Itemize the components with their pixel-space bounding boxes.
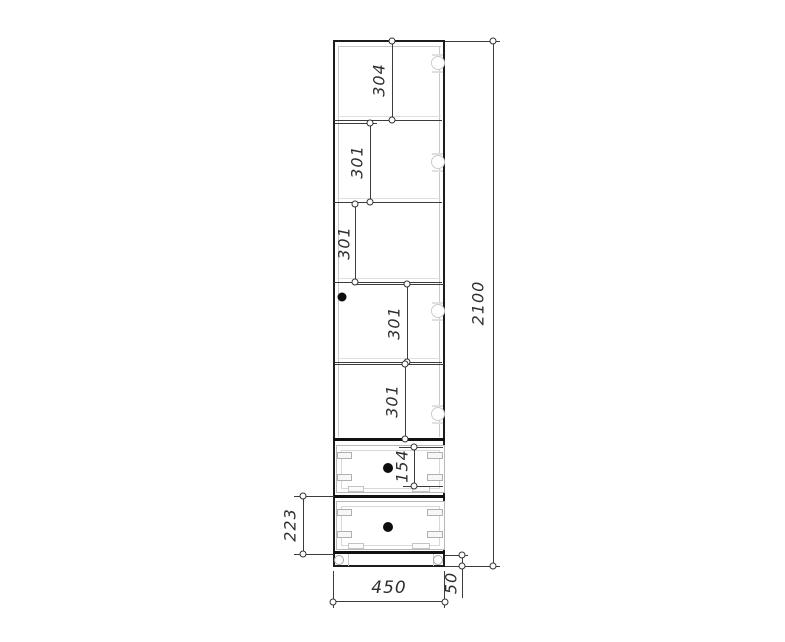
dim-line xyxy=(414,447,415,486)
hinge-4-tick-bottom xyxy=(432,422,443,424)
dim-line xyxy=(333,601,445,602)
drawer-2-slide-right xyxy=(412,543,430,549)
drawer-1-rail-right-upper xyxy=(427,452,443,459)
dim-terminator xyxy=(490,563,497,570)
shelf-3-edge-line xyxy=(334,282,442,283)
drawer-1-rail-left-upper xyxy=(337,452,352,459)
hinge-2-tick-bottom xyxy=(432,170,443,172)
hinge-icon-4 xyxy=(431,407,445,421)
dim-terminator xyxy=(442,599,449,606)
hinge-1-tick-bottom xyxy=(432,71,443,73)
dim-terminator xyxy=(352,201,359,208)
drawer-2-knob xyxy=(383,522,393,532)
cad-drawing-canvas: 304 301 301 301 301 154 xyxy=(0,0,785,642)
hinge-icon-1 xyxy=(431,56,445,70)
shelf-2-face-line xyxy=(337,198,441,199)
hinge-4-tick-top xyxy=(432,405,443,407)
dim-line xyxy=(392,41,393,120)
separator-above-drawer-1 xyxy=(333,438,445,441)
cabinet-bottom-edge xyxy=(333,565,445,567)
separator-above-plinth xyxy=(333,551,445,554)
dim-terminator xyxy=(389,117,396,124)
dim-label: 301 xyxy=(348,145,367,179)
dim-terminator xyxy=(367,199,374,206)
separator-above-drawer-2 xyxy=(333,495,445,498)
door-top-inner-line xyxy=(338,46,441,47)
dim-label: 154 xyxy=(393,449,412,483)
drawer-2-rail-right-upper xyxy=(427,509,443,516)
dim-terminator xyxy=(389,38,396,45)
shelf-4-face-line xyxy=(337,358,441,359)
hinge-3-tick-bottom xyxy=(432,319,443,321)
dim-line xyxy=(370,123,371,202)
dim-label: 50 xyxy=(442,572,461,594)
dim-line xyxy=(493,41,494,567)
hinge-icon-3 xyxy=(431,304,445,318)
plinth-foot-right xyxy=(433,555,443,565)
dim-terminator xyxy=(459,563,466,570)
drawer-1-rail-right-lower xyxy=(427,474,443,481)
dim-line xyxy=(303,496,304,554)
shelf-2-edge-line xyxy=(334,202,442,203)
drawer-1-rail-left-lower xyxy=(337,474,352,481)
door-handle-knob xyxy=(338,293,347,302)
dim-label: 301 xyxy=(385,306,404,340)
dim-line xyxy=(355,204,356,282)
extension-line xyxy=(403,486,443,487)
extension-line xyxy=(356,284,444,285)
drawer-2-slide-left xyxy=(348,543,364,549)
dim-label: 304 xyxy=(370,63,389,97)
dim-terminator xyxy=(402,361,409,368)
extension-line xyxy=(399,447,443,448)
hinge-icon-2 xyxy=(431,155,445,169)
hinge-2-tick-top xyxy=(432,153,443,155)
dim-label: 450 xyxy=(371,578,406,598)
dim-terminator xyxy=(411,483,418,490)
drawer-2-rail-right-lower xyxy=(427,531,443,538)
dim-label: 223 xyxy=(281,508,300,542)
extension-line xyxy=(335,364,444,365)
dim-terminator xyxy=(367,120,374,127)
dim-terminator xyxy=(300,493,307,500)
dim-label: 301 xyxy=(383,384,402,418)
shelf-4-edge-line xyxy=(334,362,442,363)
dim-terminator xyxy=(402,436,409,443)
dim-label: 2100 xyxy=(469,281,488,326)
plinth-foot-left xyxy=(334,555,344,565)
dim-terminator xyxy=(404,281,411,288)
dim-terminator xyxy=(490,38,497,45)
drawer-1-knob xyxy=(383,463,393,473)
dim-terminator xyxy=(330,599,337,606)
dim-terminator xyxy=(300,551,307,558)
dim-terminator xyxy=(411,444,418,451)
dim-line xyxy=(405,364,406,439)
dim-terminator xyxy=(459,552,466,559)
hinge-1-tick-top xyxy=(432,54,443,56)
door-right-inner-line xyxy=(439,46,440,437)
drawer-1-slide-left xyxy=(348,486,364,492)
plinth-tick-left xyxy=(348,554,349,566)
drawer-2-rail-left-lower xyxy=(337,531,352,538)
drawer-2-rail-left-upper xyxy=(337,509,352,516)
hinge-3-tick-top xyxy=(432,302,443,304)
dim-label: 301 xyxy=(335,226,354,260)
dim-line xyxy=(407,284,408,362)
dim-line xyxy=(462,555,463,598)
